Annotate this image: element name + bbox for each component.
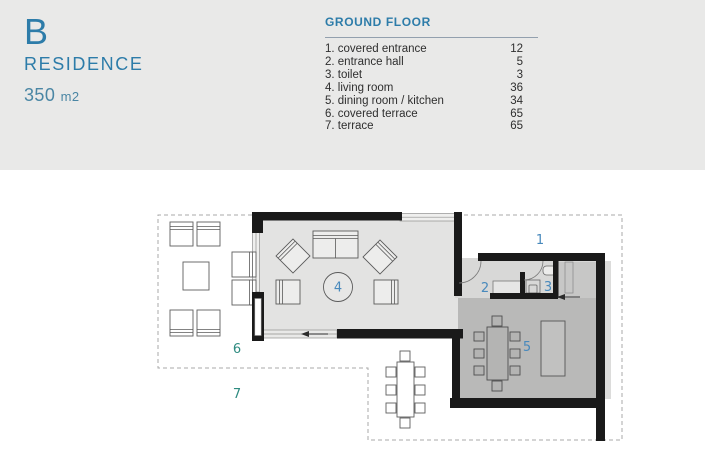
window-top: [400, 214, 458, 222]
exterior-wall-strip: [604, 261, 611, 399]
lounge-chair: [197, 222, 220, 246]
armchair: [276, 280, 300, 304]
room-label-5: 5: [523, 340, 531, 355]
room-label-3: 3: [544, 280, 552, 295]
sofa: [313, 231, 358, 258]
pocket-door-leaf: [255, 299, 261, 336]
terrace-table: [183, 262, 209, 290]
room-label-6: 6: [233, 342, 241, 357]
room-label-7: 7: [233, 387, 241, 402]
dining-table: [487, 327, 508, 380]
lounge-chair: [197, 310, 220, 336]
room-label-1: 1: [536, 233, 544, 248]
armchair: [374, 280, 398, 304]
kitchen-island: [541, 321, 565, 376]
lounge-chair: [170, 310, 193, 336]
room-label-2: 2: [481, 281, 489, 296]
terrace-chair: [232, 252, 256, 277]
room-label-4: 4: [334, 281, 342, 296]
floor-plan-drawing: 1 2 3 4 5 6 7: [0, 0, 705, 454]
page: B RESIDENCE 350 m2 GROUND FLOOR 1. cover…: [0, 0, 705, 454]
lounge-chair: [170, 222, 193, 246]
outdoor-dining-table: [397, 362, 414, 417]
hall-cabinet: [493, 281, 522, 294]
corridor-floor: [558, 262, 596, 298]
